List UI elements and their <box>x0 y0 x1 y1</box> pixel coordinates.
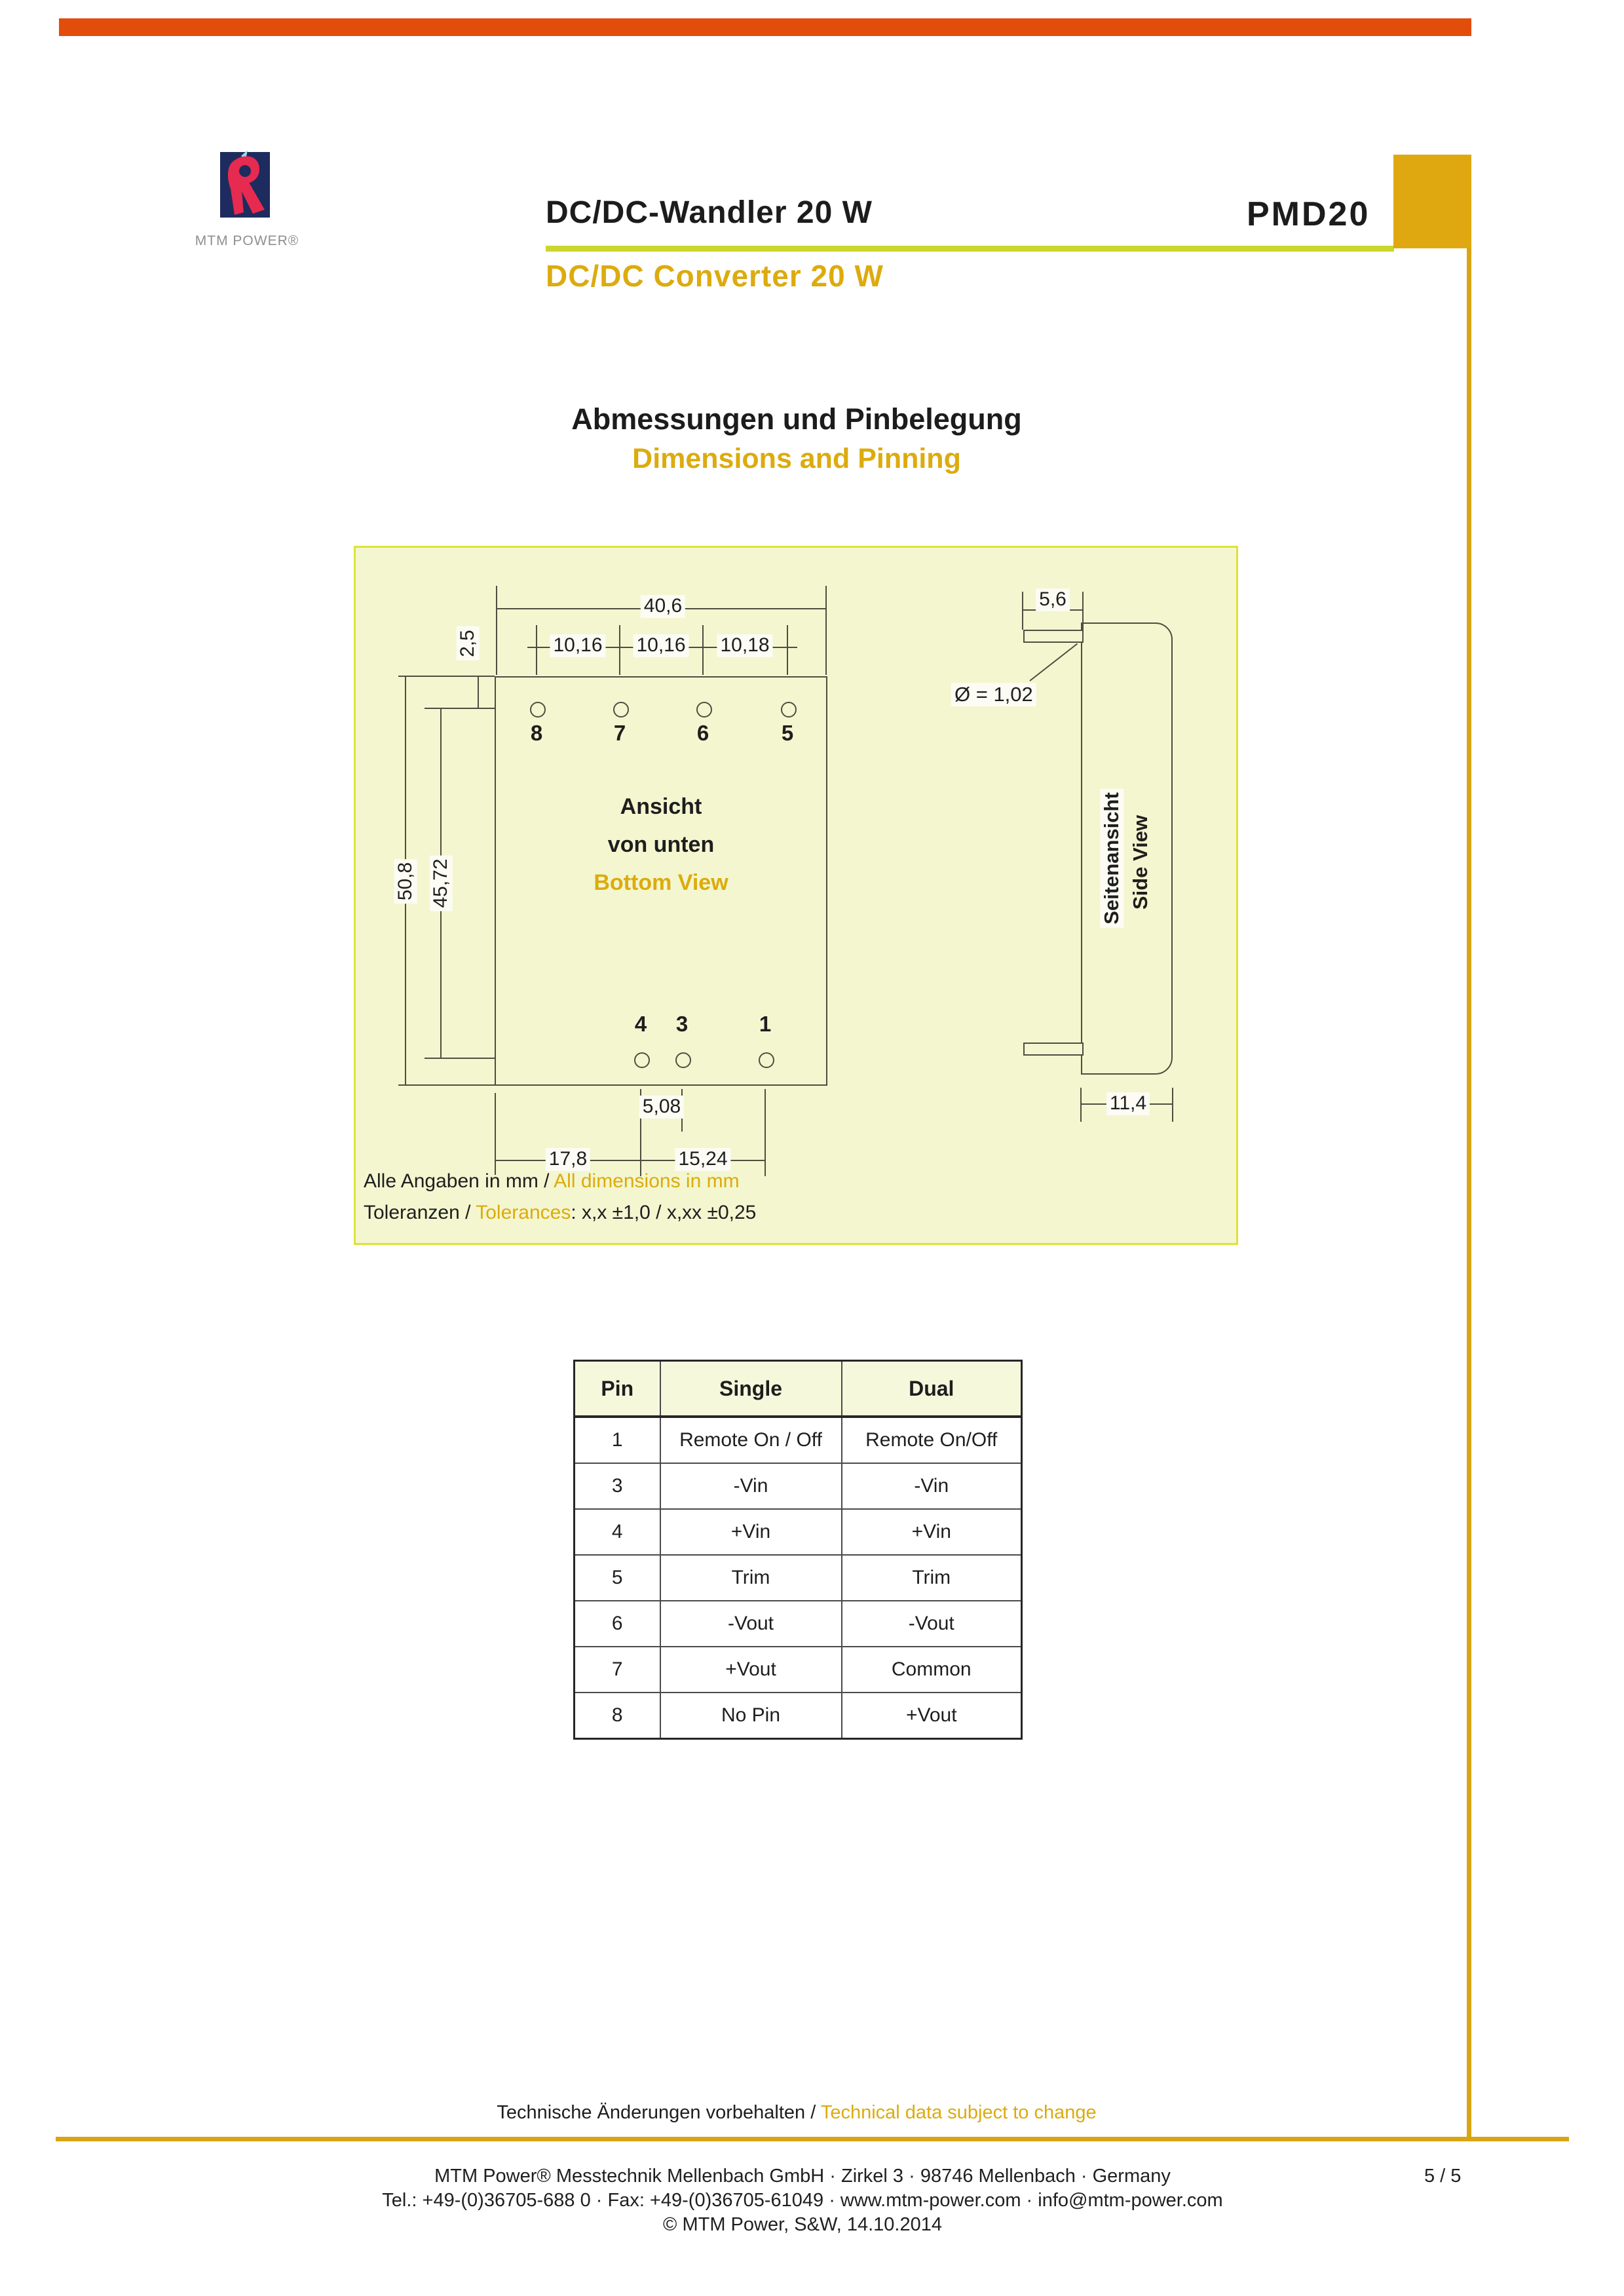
table-row: 7 +Vout Common <box>575 1647 1022 1693</box>
dim-left-offset: 17,8 <box>546 1148 590 1171</box>
dim-body-depth: 11,4 <box>1106 1092 1150 1115</box>
bottom-view-label-de2: von unten <box>495 832 827 858</box>
cell-pin: 4 <box>575 1509 660 1555</box>
pin8-hole <box>530 702 546 717</box>
side-view-label-en: Side View <box>1129 812 1152 913</box>
table-row: 4 +Vin +Vin <box>575 1509 1022 1555</box>
pin5-hole <box>781 702 797 717</box>
table-row: 5 Trim Trim <box>575 1555 1022 1601</box>
pin8-label: 8 <box>517 721 556 746</box>
dim-pin-length: 5,6 <box>1036 588 1070 611</box>
tolerance-note: Toleranzen / Tolerances: x,x ±1,0 / x,xx… <box>364 1202 756 1224</box>
cell-pin: 3 <box>575 1463 660 1509</box>
dim-pitch-3: 10,18 <box>717 634 772 657</box>
side-view-label-de: Seitenansicht <box>1100 789 1124 928</box>
pin7-hole <box>613 702 629 717</box>
table-row: 6 -Vout -Vout <box>575 1601 1022 1647</box>
footer-copyright-line: © MTM Power, S&W, 14.10.2014 <box>0 2214 1605 2236</box>
pin4-hole <box>634 1052 650 1068</box>
table-row: 1 Remote On / Off Remote On/Off <box>575 1417 1022 1463</box>
dim-right-span: 15,24 <box>675 1148 730 1171</box>
dim-line-2-5 <box>478 676 479 708</box>
change-notice: Technische Änderungen vorbehalten / Tech… <box>0 2102 1593 2124</box>
bottom-view-label-de1: Ansicht <box>495 794 827 820</box>
cell-dual: Remote On/Off <box>842 1417 1022 1463</box>
ext-line-bottom-left <box>398 1084 495 1086</box>
bottom-tick-left-edge <box>495 1093 496 1175</box>
pin-table-header-single: Single <box>660 1361 842 1417</box>
page-title-de: DC/DC-Wandler 20 W <box>546 195 873 231</box>
dim-total-width: 40,6 <box>641 595 685 618</box>
cell-single: -Vout <box>660 1601 842 1647</box>
cell-dual: Common <box>842 1647 1022 1693</box>
pin-table-header-row: Pin Single Dual <box>575 1361 1022 1417</box>
mtm-logo <box>211 149 279 229</box>
section-heading-en: Dimensions and Pinning <box>0 443 1593 475</box>
cell-dual: +Vout <box>842 1693 1022 1739</box>
pitch-tick-1 <box>536 625 537 675</box>
pin-table: Pin Single Dual 1 Remote On / Off Remote… <box>573 1360 1023 1740</box>
logo-navy-dot <box>239 165 251 177</box>
datasheet-page: { "colors": { "top_bar": "#e34d0c", "gol… <box>0 0 1624 2296</box>
footer-company-line: MTM Power® Messtechnik Mellenbach GmbH ·… <box>0 2166 1605 2187</box>
pitch-tick-3 <box>702 625 704 675</box>
footer-contact-line: Tel.: +49-(0)36705-688 0 · Fax: +49-(0)3… <box>0 2190 1605 2211</box>
product-name: PMD20 <box>1247 195 1370 234</box>
cell-single: +Vout <box>660 1647 842 1693</box>
ext-line-pin-row-top <box>425 708 495 709</box>
pin5-label: 5 <box>768 721 807 746</box>
pin4-label: 4 <box>621 1012 660 1037</box>
pin-table-header-pin: Pin <box>575 1361 660 1417</box>
cell-dual: Trim <box>842 1555 1022 1601</box>
dim-pin-row-span: 45,72 <box>430 855 453 911</box>
dim-pitch-1: 10,16 <box>550 634 605 657</box>
pin3-hole <box>675 1052 691 1068</box>
ext-line-pin-row-bottom <box>425 1058 495 1059</box>
brand-name: MTM POWER® <box>191 233 303 249</box>
pin1-hole <box>759 1052 774 1068</box>
dim-tick-right <box>825 586 827 675</box>
dim-pitch-2: 10,16 <box>633 634 689 657</box>
cell-dual: -Vout <box>842 1601 1022 1647</box>
page-title-en: DC/DC Converter 20 W <box>546 258 884 294</box>
pitch-tick-2 <box>619 625 620 675</box>
table-row: 8 No Pin +Vout <box>575 1693 1022 1739</box>
tick-11-4-right <box>1172 1088 1173 1122</box>
pin1-label: 1 <box>746 1012 785 1037</box>
bottom-tick-pin1 <box>765 1089 766 1176</box>
cell-pin: 8 <box>575 1693 660 1739</box>
units-note-en: All dimensions in mm <box>554 1170 739 1192</box>
tick-5-6-left <box>1022 592 1023 630</box>
change-notice-de: Technische Änderungen vorbehalten / <box>497 2102 820 2123</box>
units-note-de: Alle Angaben in mm / <box>364 1170 554 1192</box>
right-accent-line <box>1467 248 1471 2139</box>
dim-pin-diameter: Ø = 1,02 <box>951 683 1036 706</box>
bottom-view-label-en: Bottom View <box>495 870 827 896</box>
dim-edge-offset: 2,5 <box>457 626 480 660</box>
table-row: 3 -Vin -Vin <box>575 1463 1022 1509</box>
cell-pin: 7 <box>575 1647 660 1693</box>
ext-line-top-left <box>398 676 495 677</box>
side-view-top-pin <box>1023 630 1084 643</box>
pin-table-header-dual: Dual <box>842 1361 1022 1417</box>
dim-pin-gap: 5,08 <box>639 1096 684 1119</box>
cell-single: Trim <box>660 1555 842 1601</box>
title-underline <box>546 246 1394 252</box>
dim-tick-left <box>496 586 497 675</box>
cell-dual: +Vin <box>842 1509 1022 1555</box>
pin7-label: 7 <box>600 721 639 746</box>
tolerance-note-de: Toleranzen / <box>364 1202 476 1223</box>
pin6-hole <box>696 702 712 717</box>
cell-pin: 6 <box>575 1601 660 1647</box>
pitch-tick-4 <box>787 625 788 675</box>
pin3-label: 3 <box>662 1012 702 1037</box>
gold-corner-box <box>1393 155 1471 248</box>
top-accent-bar <box>59 18 1471 36</box>
tolerance-note-values: : x,x ±1,0 / x,xx ±0,25 <box>571 1202 756 1223</box>
cell-pin: 1 <box>575 1417 660 1463</box>
cell-pin: 5 <box>575 1555 660 1601</box>
cell-single: -Vin <box>660 1463 842 1509</box>
cell-dual: -Vin <box>842 1463 1022 1509</box>
tick-11-4-left <box>1080 1088 1082 1122</box>
section-heading-de: Abmessungen und Pinbelegung <box>0 402 1593 436</box>
units-note: Alle Angaben in mm / All dimensions in m… <box>364 1170 740 1193</box>
tolerance-note-en: Tolerances <box>476 1202 571 1223</box>
change-notice-en: Technical data subject to change <box>821 2102 1097 2123</box>
side-view-body <box>1081 622 1173 1075</box>
footer-separator <box>56 2137 1569 2141</box>
cell-single: No Pin <box>660 1693 842 1739</box>
pin6-label: 6 <box>683 721 723 746</box>
page-number: 5 / 5 <box>1424 2166 1461 2187</box>
cell-single: +Vin <box>660 1509 842 1555</box>
cell-single: Remote On / Off <box>660 1417 842 1463</box>
tick-5-6-right <box>1082 592 1084 630</box>
side-view-bottom-pin <box>1023 1043 1084 1056</box>
dim-total-height: 50,8 <box>394 859 417 904</box>
